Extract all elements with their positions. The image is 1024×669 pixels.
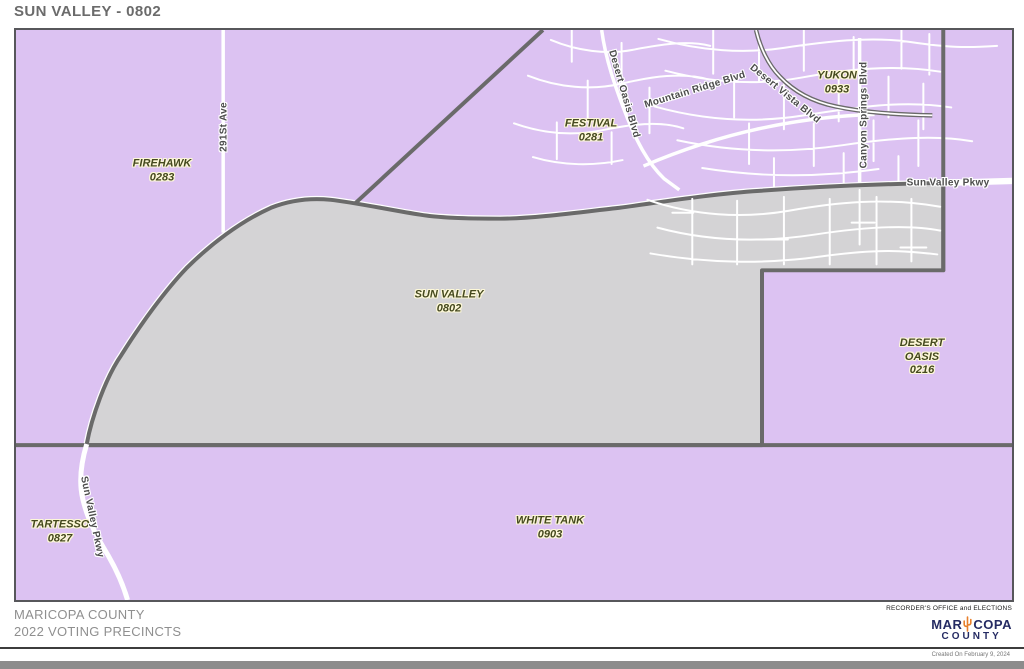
precinct-label-firehawk: FIREHAWK0283 bbox=[133, 158, 192, 185]
road-label-canyon-springs-blvd: Canyon Springs Blvd bbox=[859, 62, 870, 169]
footer-title-block: MARICOPA COUNTY 2022 VOTING PRECINCTS bbox=[14, 606, 181, 640]
logo-text-mar: MAR bbox=[931, 617, 962, 632]
recorder-office-text: RECORDER'S OFFICE and ELECTIONS bbox=[792, 605, 1012, 612]
precinct-label-desert-oasis: DESERTOASIS0216 bbox=[900, 337, 944, 378]
precinct-label-white-tank: WHITE TANK0903 bbox=[516, 515, 584, 542]
created-date: Created On February 9, 2024 bbox=[932, 652, 1010, 658]
road-label-sun-valley-pkwy-east: Sun Valley Pkwy bbox=[907, 178, 990, 189]
precinct-map: FIREHAWK0283 FESTIVAL0281 YUKON0933 SUN … bbox=[14, 28, 1014, 602]
logo-text-copa: COPA bbox=[973, 617, 1012, 632]
road-label-291st-ave: 291St Ave bbox=[219, 102, 230, 152]
logo-text-county: COUNTY bbox=[931, 631, 1012, 642]
cactus-icon bbox=[963, 616, 972, 632]
footer-county: MARICOPA COUNTY bbox=[14, 606, 181, 623]
precinct-label-festival: FESTIVAL0281 bbox=[565, 118, 617, 145]
footer-agency-block: RECORDER'S OFFICE and ELECTIONS MAR COPA… bbox=[792, 605, 1012, 644]
precinct-label-yukon: YUKON0933 bbox=[817, 70, 857, 97]
precinct-label-sun-valley: SUN VALLEY0802 bbox=[415, 289, 484, 316]
maricopa-county-logo: MAR COPA COUNTY bbox=[931, 616, 1012, 642]
footer-divider bbox=[0, 647, 1024, 649]
footer-subtitle: 2022 VOTING PRECINCTS bbox=[14, 623, 181, 640]
page-title: SUN VALLEY - 0802 bbox=[14, 3, 161, 20]
precinct-label-tartesso: TARTESSO0827 bbox=[31, 519, 90, 546]
bottom-bar bbox=[0, 661, 1024, 669]
